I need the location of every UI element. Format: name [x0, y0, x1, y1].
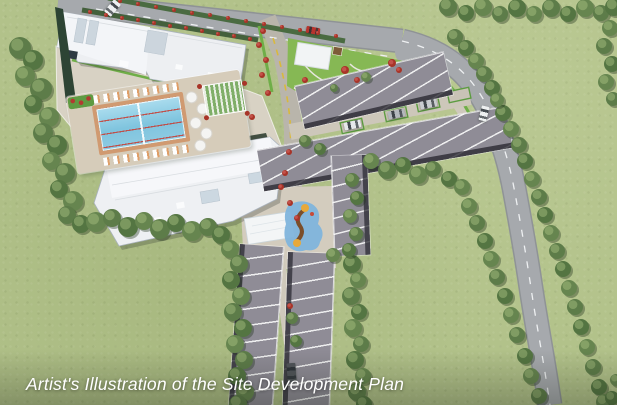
- umbrella: [193, 139, 207, 153]
- playground-splash-pad: [284, 201, 322, 251]
- umbrella: [200, 127, 214, 141]
- caption-text: Artist's Illustration of the Site Develo…: [26, 374, 404, 395]
- trellis-garden: [202, 79, 247, 117]
- umbrella: [185, 90, 199, 104]
- umbrella: [189, 116, 203, 130]
- site-plan-illustration: Artist's Illustration of the Site Develo…: [0, 0, 617, 405]
- flower-planter: [67, 94, 95, 110]
- flower-shrub: [204, 115, 210, 121]
- gazebo: [332, 46, 342, 55]
- townhouse-row: [331, 155, 370, 256]
- sport-court: [294, 42, 331, 69]
